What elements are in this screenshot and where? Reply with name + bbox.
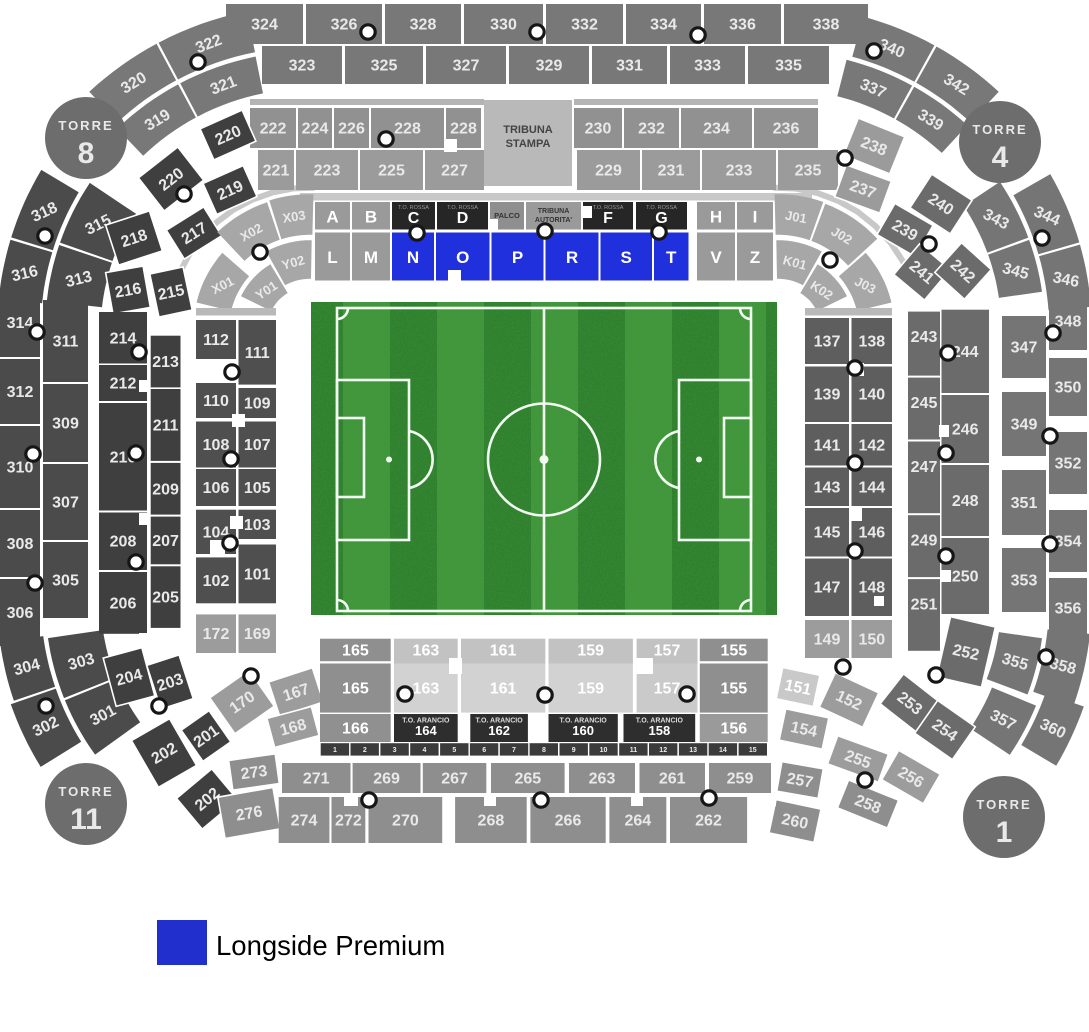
svg-text:227: 227 xyxy=(441,163,468,180)
svg-text:143: 143 xyxy=(814,479,841,496)
svg-text:138: 138 xyxy=(858,334,885,351)
svg-text:Longside Premium: Longside Premium xyxy=(216,930,445,961)
svg-text:13: 13 xyxy=(689,747,697,754)
svg-text:161: 161 xyxy=(490,681,517,698)
svg-text:233: 233 xyxy=(726,163,753,180)
svg-text:169: 169 xyxy=(244,626,271,643)
svg-text:271: 271 xyxy=(303,771,330,788)
svg-text:312: 312 xyxy=(7,384,34,401)
svg-text:TORRE: TORRE xyxy=(58,784,113,799)
svg-text:247: 247 xyxy=(911,459,938,476)
svg-text:157: 157 xyxy=(654,643,681,660)
svg-text:STAMPA: STAMPA xyxy=(506,138,551,150)
svg-text:L: L xyxy=(327,248,337,267)
svg-text:334: 334 xyxy=(650,17,677,34)
svg-text:163: 163 xyxy=(413,681,440,698)
svg-text:267: 267 xyxy=(441,771,468,788)
svg-text:TORRE: TORRE xyxy=(58,118,113,133)
svg-text:353: 353 xyxy=(1011,573,1038,590)
svg-text:107: 107 xyxy=(244,437,271,454)
svg-text:148: 148 xyxy=(858,580,885,597)
svg-text:1: 1 xyxy=(996,816,1013,849)
svg-text:263: 263 xyxy=(589,771,616,788)
svg-text:N: N xyxy=(407,248,419,267)
svg-text:155: 155 xyxy=(720,681,747,698)
svg-text:310: 310 xyxy=(7,460,34,477)
svg-text:347: 347 xyxy=(1011,340,1038,357)
svg-text:329: 329 xyxy=(536,58,563,75)
svg-text:140: 140 xyxy=(858,387,885,404)
svg-text:213: 213 xyxy=(152,354,179,371)
svg-text:A: A xyxy=(326,207,338,226)
svg-text:139: 139 xyxy=(814,387,841,404)
svg-text:222: 222 xyxy=(260,121,287,138)
svg-text:2: 2 xyxy=(363,747,367,754)
svg-text:162: 162 xyxy=(488,723,510,738)
svg-text:248: 248 xyxy=(952,493,979,510)
svg-text:270: 270 xyxy=(392,813,419,830)
svg-text:144: 144 xyxy=(858,479,885,496)
svg-text:159: 159 xyxy=(577,643,604,660)
svg-text:8: 8 xyxy=(542,747,546,754)
svg-text:110: 110 xyxy=(203,393,229,410)
svg-text:274: 274 xyxy=(291,813,318,830)
svg-text:262: 262 xyxy=(695,813,722,830)
svg-text:338: 338 xyxy=(813,17,840,34)
svg-text:TRIBUNA: TRIBUNA xyxy=(538,208,570,215)
svg-text:259: 259 xyxy=(727,771,754,788)
svg-text:305: 305 xyxy=(52,573,79,590)
svg-text:O: O xyxy=(456,248,469,267)
svg-text:223: 223 xyxy=(314,163,341,180)
svg-text:356: 356 xyxy=(1055,601,1082,618)
svg-text:307: 307 xyxy=(52,495,79,512)
svg-text:269: 269 xyxy=(373,771,400,788)
svg-text:TORRE: TORRE xyxy=(976,797,1031,812)
svg-text:15: 15 xyxy=(749,747,757,754)
svg-text:T: T xyxy=(666,248,677,267)
svg-text:327: 327 xyxy=(453,58,480,75)
svg-text:228: 228 xyxy=(394,121,421,138)
svg-text:311: 311 xyxy=(53,334,79,351)
svg-text:TRIBUNA: TRIBUNA xyxy=(503,124,553,136)
svg-text:D: D xyxy=(457,210,469,227)
svg-text:5: 5 xyxy=(452,747,456,754)
svg-text:AUTORITA': AUTORITA' xyxy=(535,217,573,224)
svg-text:328: 328 xyxy=(410,17,437,34)
svg-text:207: 207 xyxy=(152,533,179,550)
svg-text:234: 234 xyxy=(703,121,730,138)
svg-text:R: R xyxy=(566,248,578,267)
svg-text:Z: Z xyxy=(750,248,760,267)
svg-text:235: 235 xyxy=(795,163,822,180)
svg-text:325: 325 xyxy=(371,58,398,75)
svg-text:PALCO: PALCO xyxy=(494,211,520,220)
svg-text:212: 212 xyxy=(110,376,137,393)
svg-text:351: 351 xyxy=(1011,495,1038,512)
svg-text:P: P xyxy=(512,248,523,267)
svg-text:F: F xyxy=(603,210,613,227)
svg-text:9: 9 xyxy=(572,747,576,754)
svg-text:251: 251 xyxy=(911,597,938,614)
svg-text:102: 102 xyxy=(203,573,230,590)
svg-text:165: 165 xyxy=(342,643,369,660)
svg-text:160: 160 xyxy=(572,723,594,738)
svg-text:109: 109 xyxy=(244,396,271,413)
svg-text:159: 159 xyxy=(577,681,604,698)
svg-text:108: 108 xyxy=(203,437,230,454)
svg-text:246: 246 xyxy=(952,422,979,439)
svg-text:354: 354 xyxy=(1055,534,1082,551)
svg-text:141: 141 xyxy=(814,437,841,454)
svg-text:161: 161 xyxy=(490,643,517,660)
svg-text:172: 172 xyxy=(203,626,230,643)
svg-text:7: 7 xyxy=(512,747,516,754)
svg-text:12: 12 xyxy=(659,747,667,754)
svg-text:243: 243 xyxy=(911,329,938,346)
svg-text:309: 309 xyxy=(52,416,79,433)
svg-text:352: 352 xyxy=(1055,456,1082,473)
svg-text:331: 331 xyxy=(616,58,643,75)
svg-text:211: 211 xyxy=(153,417,179,434)
svg-text:105: 105 xyxy=(244,480,271,497)
svg-text:214: 214 xyxy=(110,330,137,347)
svg-text:206: 206 xyxy=(110,595,137,612)
svg-text:1: 1 xyxy=(333,747,337,754)
svg-text:11: 11 xyxy=(70,803,102,836)
svg-text:14: 14 xyxy=(719,747,727,754)
svg-text:158: 158 xyxy=(648,723,670,738)
svg-text:8: 8 xyxy=(78,137,95,170)
svg-text:221: 221 xyxy=(263,163,290,180)
svg-text:H: H xyxy=(710,207,722,226)
svg-text:231: 231 xyxy=(658,163,685,180)
svg-text:228: 228 xyxy=(450,121,477,138)
svg-text:166: 166 xyxy=(342,721,369,738)
svg-text:106: 106 xyxy=(203,480,230,497)
svg-text:111: 111 xyxy=(245,345,270,362)
svg-text:147: 147 xyxy=(814,580,841,597)
svg-text:156: 156 xyxy=(720,721,747,738)
svg-text:268: 268 xyxy=(478,813,505,830)
svg-text:306: 306 xyxy=(7,605,34,622)
svg-text:137: 137 xyxy=(814,334,841,351)
svg-text:B: B xyxy=(365,207,377,226)
svg-text:324: 324 xyxy=(251,17,278,34)
svg-text:112: 112 xyxy=(203,332,229,349)
svg-text:232: 232 xyxy=(638,121,665,138)
svg-text:I: I xyxy=(753,207,758,226)
svg-text:165: 165 xyxy=(342,681,369,698)
svg-text:208: 208 xyxy=(110,534,137,551)
svg-text:103: 103 xyxy=(244,517,271,534)
svg-text:224: 224 xyxy=(302,121,329,138)
svg-text:3: 3 xyxy=(393,747,397,754)
svg-text:272: 272 xyxy=(335,813,362,830)
svg-text:150: 150 xyxy=(858,632,885,649)
svg-text:149: 149 xyxy=(814,632,841,649)
svg-text:101: 101 xyxy=(244,566,271,583)
svg-text:332: 332 xyxy=(571,17,598,34)
svg-text:146: 146 xyxy=(858,525,885,542)
svg-text:333: 333 xyxy=(694,58,721,75)
svg-text:330: 330 xyxy=(490,17,517,34)
svg-text:245: 245 xyxy=(911,395,938,412)
svg-text:M: M xyxy=(364,248,378,267)
svg-text:142: 142 xyxy=(858,437,885,454)
svg-text:236: 236 xyxy=(773,121,800,138)
svg-text:335: 335 xyxy=(775,58,802,75)
svg-text:249: 249 xyxy=(911,533,938,550)
svg-text:4: 4 xyxy=(992,141,1009,174)
svg-text:350: 350 xyxy=(1055,380,1082,397)
svg-text:230: 230 xyxy=(585,121,612,138)
svg-text:V: V xyxy=(710,248,722,267)
svg-text:336: 336 xyxy=(729,17,756,34)
svg-text:226: 226 xyxy=(338,121,365,138)
svg-text:145: 145 xyxy=(814,525,841,542)
svg-text:308: 308 xyxy=(7,536,34,553)
svg-text:229: 229 xyxy=(595,163,622,180)
svg-text:261: 261 xyxy=(659,771,686,788)
svg-text:4: 4 xyxy=(423,747,427,754)
svg-text:349: 349 xyxy=(1011,417,1038,434)
svg-text:S: S xyxy=(621,248,632,267)
svg-text:157: 157 xyxy=(654,681,681,698)
svg-text:163: 163 xyxy=(413,643,440,660)
svg-text:326: 326 xyxy=(331,17,358,34)
svg-text:164: 164 xyxy=(415,723,437,738)
svg-text:155: 155 xyxy=(720,643,747,660)
svg-text:10: 10 xyxy=(600,747,608,754)
svg-text:266: 266 xyxy=(555,813,582,830)
svg-text:6: 6 xyxy=(482,747,486,754)
svg-text:225: 225 xyxy=(378,163,405,180)
svg-text:250: 250 xyxy=(952,569,979,586)
svg-text:323: 323 xyxy=(289,58,316,75)
svg-text:265: 265 xyxy=(514,771,541,788)
svg-text:205: 205 xyxy=(152,590,179,607)
svg-text:209: 209 xyxy=(152,481,179,498)
svg-text:11: 11 xyxy=(630,747,638,754)
svg-text:TORRE: TORRE xyxy=(972,122,1027,137)
svg-text:264: 264 xyxy=(624,813,651,830)
